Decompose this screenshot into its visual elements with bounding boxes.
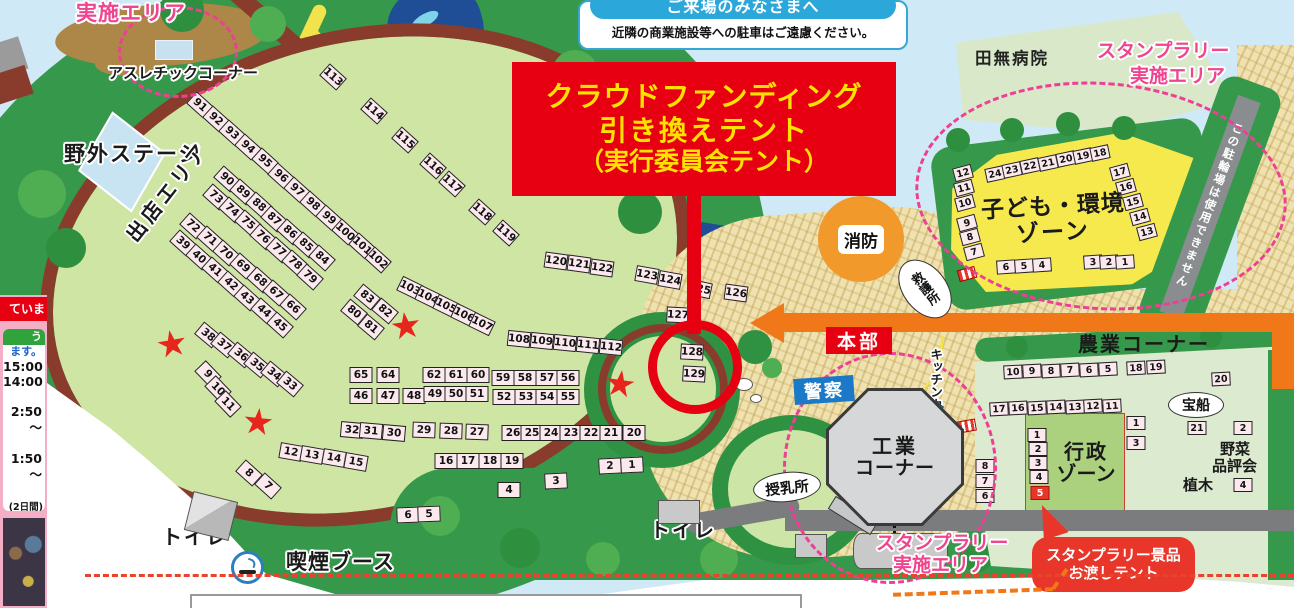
booth-marker: 56: [557, 370, 580, 386]
booth-marker: 46: [350, 388, 373, 404]
booth-marker: 17: [457, 453, 480, 469]
star-icon: ★: [153, 324, 191, 365]
booth-marker: 53: [515, 389, 538, 405]
booth-marker: 122: [589, 258, 614, 277]
booth-marker: 48: [403, 388, 426, 404]
tree: [250, 6, 286, 42]
booth-marker: 27: [465, 424, 489, 441]
police-box: 警察: [793, 375, 855, 405]
area-label-top-left: 実施エリア: [76, 2, 186, 24]
star-icon: ★: [240, 403, 276, 442]
visitor-notice: ご来場のみなさまへ 近隣の商業施設等への駐車はご遠慮ください。: [578, 0, 908, 50]
booth-marker: 3: [1127, 436, 1146, 450]
event-map: 田無病院 91929394959697989910010110290898887…: [0, 0, 1294, 608]
industry-label-1: 工業: [872, 436, 918, 457]
highlight-circle: [648, 320, 742, 414]
booth-marker: 109: [530, 332, 555, 350]
booth-marker: 3: [1029, 456, 1048, 470]
booth-marker: 2: [598, 457, 622, 474]
booth-marker: 30: [382, 424, 406, 442]
booth-marker: 6: [1079, 363, 1099, 378]
route-arrow-elbow: [1272, 313, 1294, 389]
booth-marker: 55: [557, 389, 580, 405]
tree: [618, 190, 662, 234]
booth-marker: 47: [377, 388, 400, 404]
hospital-label: 田無病院: [975, 50, 1049, 67]
red-dashed-boundary: [85, 574, 1294, 577]
visitor-notice-header: ご来場のみなさまへ: [590, 0, 896, 19]
athletic-icon: [155, 40, 193, 60]
sidebar-time: 15:00: [3, 359, 45, 375]
booth-marker: 111: [576, 336, 601, 354]
booth-marker: 7: [1060, 363, 1080, 378]
tree: [586, 542, 620, 576]
sidebar-time: 1:50～: [3, 451, 45, 482]
agri-label: 農業コーナー: [1078, 334, 1210, 355]
industry-label-2: コーナー: [855, 459, 935, 479]
booth-marker: 59: [492, 370, 515, 386]
booth-marker: 65: [350, 367, 373, 383]
booth-marker: 49: [424, 386, 447, 402]
booth-marker: 14: [1046, 400, 1066, 415]
athletic-label: アスレチックコーナー: [108, 66, 258, 82]
admin-label-1: 行政: [1064, 442, 1108, 463]
booth-marker: 64: [377, 367, 400, 383]
booth-marker: 112: [599, 338, 624, 356]
booth-marker: 17: [989, 402, 1009, 417]
booth-marker: 16: [1008, 401, 1028, 416]
visitor-notice-body: 近隣の商業施設等への駐車はご遠慮ください。: [580, 22, 906, 41]
booth-marker: 8: [1041, 364, 1061, 379]
booth-marker: 120: [543, 251, 568, 270]
sidebar-photo: [3, 518, 45, 606]
booth-marker: 9: [1022, 364, 1042, 379]
star-icon: ★: [388, 307, 425, 347]
route-arrow-head: [750, 303, 784, 343]
veg-fair-label-2: 品評会: [1212, 459, 1257, 475]
booth-marker: 21: [600, 425, 623, 441]
booth-marker: 3: [544, 472, 568, 489]
booth-marker: 5: [1031, 486, 1050, 500]
booth-marker: 2: [1029, 442, 1048, 456]
booth-marker: 121: [566, 254, 591, 273]
stamp-rally-bottom-1: スタンプラリー: [876, 534, 1008, 554]
booth-marker: 20: [1211, 372, 1231, 387]
toilet-center-icon: [658, 500, 700, 524]
booth-marker: 58: [514, 370, 537, 386]
booth-marker: 10: [1003, 365, 1023, 380]
tree: [18, 170, 66, 218]
booth-marker: 54: [536, 389, 559, 405]
booth-marker: 52: [493, 389, 516, 405]
ueki-label: 植木: [1183, 478, 1213, 494]
booth-marker: 1: [1127, 416, 1146, 430]
booth-marker: 31: [359, 422, 383, 440]
left-sidebar-panel: ています。 う ます。 15:00 14:00 2:50～ 1:50～ (2日間…: [0, 295, 47, 608]
highlight-line-3: （実行委員会テント）: [579, 149, 829, 175]
stamp-rally-right-1: スタンプラリー: [1097, 42, 1229, 62]
highlight-line-1: クラウドファンディング: [545, 82, 862, 111]
rock: [750, 394, 762, 403]
booth-marker: 1: [620, 456, 644, 473]
bottom-panel-edge: [190, 594, 802, 608]
booth-marker: 51: [466, 386, 489, 402]
booth-marker: 57: [536, 370, 559, 386]
booth-marker: 60: [467, 367, 490, 383]
sidebar-note: (2日間): [3, 499, 45, 512]
booth-marker: 62: [423, 367, 446, 383]
sidebar-banner: ています。: [0, 297, 47, 321]
tree: [1006, 336, 1028, 358]
star-icon: ★: [602, 365, 639, 405]
hq-box: 本部: [826, 327, 892, 354]
tree: [46, 228, 86, 268]
booth-marker: 12: [1083, 399, 1103, 414]
booth-marker: 21: [1188, 421, 1207, 435]
booth-marker: 5: [417, 506, 441, 523]
booth-marker: 1: [1028, 428, 1047, 442]
booth-marker: 19: [501, 453, 524, 469]
booth-marker: 126: [723, 283, 748, 302]
veg-fair-label-1: 野菜: [1220, 442, 1250, 458]
booth-marker: 5: [1098, 362, 1118, 377]
smoking-label: 喫煙ブース: [286, 551, 395, 573]
stamp-rally-bottom-2: 実施エリア: [893, 556, 988, 576]
booth-marker: 18: [1126, 361, 1146, 376]
booth-marker: 29: [412, 422, 436, 439]
booth-marker: 61: [445, 367, 468, 383]
sidebar-info-box: う ます。 15:00 14:00 2:50～ 1:50～ (2日間): [3, 329, 45, 511]
prize-label-1: スタンプラリー景品: [1046, 548, 1181, 564]
treasure-ship-oval: 宝船: [1168, 392, 1224, 418]
booth-marker: 19: [1146, 360, 1166, 375]
booth-marker: 11: [1102, 399, 1122, 414]
smoking-icon: [231, 551, 264, 584]
sidebar-time: 14:00: [3, 374, 45, 390]
booth-marker: 4: [1030, 470, 1049, 484]
booth-marker: 15: [1027, 401, 1047, 416]
sidebar-line: ます。: [3, 345, 45, 359]
booth-marker: 6: [396, 507, 420, 524]
booth-marker: 13: [1065, 400, 1085, 415]
booth-marker: 4: [498, 482, 521, 498]
highlight-line-2: 引き換えテント: [599, 116, 809, 145]
fire-station-label: 消防: [838, 225, 884, 254]
booth-marker: 20: [623, 425, 646, 441]
booth-marker: 2: [1234, 421, 1253, 435]
booth-marker: 16: [435, 453, 458, 469]
tree: [500, 528, 540, 568]
booth-marker: 28: [439, 423, 463, 440]
bush: [762, 358, 782, 378]
highlight-pointer-line: [687, 194, 701, 334]
admin-label-2: ゾーン: [1057, 464, 1116, 485]
sidebar-box-header: う: [3, 329, 45, 345]
stamp-rally-right-2: 実施エリア: [1130, 67, 1225, 87]
booth-marker: 108: [507, 330, 532, 348]
sidebar-time: 2:50～: [3, 404, 45, 435]
smoke-glyph: [246, 558, 257, 569]
booth-marker: 18: [479, 453, 502, 469]
fire-station-circle: 消防: [818, 196, 904, 282]
booth-marker: 4: [1234, 478, 1253, 492]
kids-zone-label-2: ゾーン: [1015, 219, 1090, 247]
highlight-box: クラウドファンディング 引き換えテント （実行委員会テント）: [512, 62, 896, 196]
booth-marker: 50: [445, 386, 468, 402]
booth-marker: 110: [553, 334, 578, 352]
